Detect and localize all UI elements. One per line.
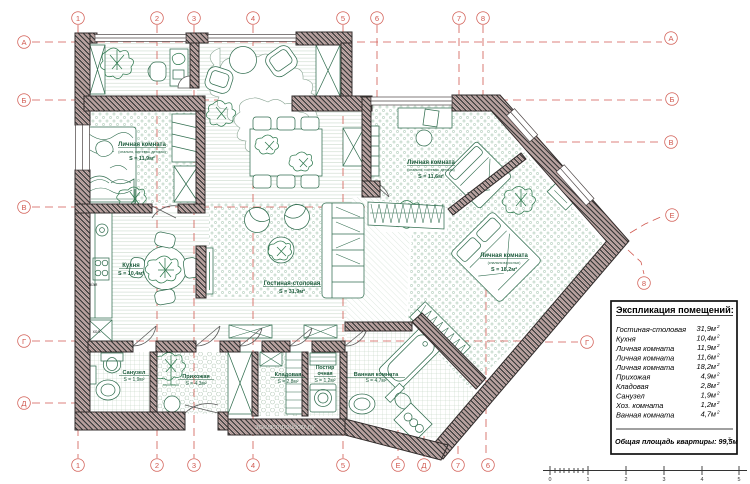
svg-text:S = 31,9м²: S = 31,9м² (279, 289, 305, 295)
svg-text:Личная комната: Личная комната (480, 253, 528, 259)
svg-text:Личная комната: Личная комната (615, 344, 674, 353)
svg-text:Личная комната: Личная комната (615, 354, 674, 363)
svg-text:6: 6 (486, 461, 490, 470)
svg-text:S = 1,2м²: S = 1,2м² (314, 378, 335, 384)
svg-text:2: 2 (716, 343, 720, 348)
svg-text:Личная комната: Личная комната (407, 160, 455, 166)
svg-text:3: 3 (192, 461, 196, 470)
svg-text:0: 0 (549, 477, 552, 483)
svg-text:В: В (668, 138, 673, 147)
svg-text:2: 2 (625, 477, 628, 483)
svg-text:S = 18,2м²: S = 18,2м² (491, 267, 517, 273)
svg-text:Гостиная-столовая: Гостиная-столовая (616, 325, 686, 334)
svg-text:1: 1 (587, 477, 590, 483)
svg-text:Прихожая: Прихожая (616, 373, 650, 382)
svg-text:S = 4,7м²: S = 4,7м² (365, 378, 386, 384)
svg-text:Кухня: Кухня (616, 335, 636, 344)
svg-text:2: 2 (716, 353, 720, 358)
svg-text:S = 1,9м²: S = 1,9м² (123, 377, 144, 383)
svg-text:Хоз. комната: Хоз. комната (615, 401, 663, 410)
svg-text:2: 2 (716, 334, 720, 339)
svg-text:Санузел: Санузел (122, 370, 145, 376)
svg-text:4,7м: 4,7м (701, 410, 716, 419)
svg-text:3: 3 (192, 14, 196, 23)
svg-text:2: 2 (716, 381, 720, 386)
svg-text:8: 8 (481, 14, 485, 23)
svg-text:п/ая: п/ая (89, 282, 98, 287)
svg-text:Е: Е (395, 461, 400, 470)
svg-text:Б: Б (22, 96, 27, 105)
svg-text:S = 11,9м²: S = 11,9м² (129, 156, 155, 162)
svg-text:Е: Е (669, 211, 674, 220)
svg-text:6: 6 (375, 14, 379, 23)
svg-text:2: 2 (716, 324, 720, 329)
svg-text:Экспликация помещений:: Экспликация помещений: (616, 305, 734, 315)
svg-text:2: 2 (716, 372, 720, 377)
svg-text:11,9м: 11,9м (697, 343, 716, 352)
svg-text:18,2м: 18,2м (697, 362, 716, 371)
svg-text:2: 2 (727, 436, 731, 441)
svg-text:очная: очная (317, 371, 332, 377)
svg-text:(спальня взрослых): (спальня взрослых) (488, 261, 521, 265)
svg-text:1,9м: 1,9м (701, 391, 716, 400)
svg-text:2: 2 (716, 391, 720, 396)
svg-text:S = 4,3м²: S = 4,3м² (185, 381, 206, 387)
svg-text:(спальня, гостевая, детская): (спальня, гостевая, детская) (407, 168, 454, 172)
svg-text:Гостиная-столовая: Гостиная-столовая (264, 281, 321, 287)
svg-text:4: 4 (701, 477, 704, 483)
svg-text:Личная комната: Личная комната (118, 142, 166, 148)
svg-text:Б: Б (670, 95, 675, 104)
svg-text:S = 11,6м²: S = 11,6м² (418, 174, 444, 180)
svg-text:Г: Г (585, 338, 589, 347)
svg-text:2: 2 (155, 461, 159, 470)
svg-text:3: 3 (663, 477, 666, 483)
svg-text:4: 4 (251, 461, 255, 470)
svg-text:Общая площадь квартиры: 99,5м: Общая площадь квартиры: 99,5м (615, 437, 739, 446)
svg-text:31,9м: 31,9м (697, 324, 716, 333)
svg-text:1: 1 (76, 461, 80, 470)
svg-text:Кухня: Кухня (122, 263, 140, 269)
svg-text:5: 5 (341, 461, 345, 470)
svg-text:1,2м: 1,2м (701, 400, 716, 409)
svg-text:1: 1 (76, 14, 80, 23)
svg-text:10,4м: 10,4м (697, 334, 716, 343)
svg-text:2: 2 (155, 14, 159, 23)
svg-text:8: 8 (642, 279, 646, 288)
svg-text:2: 2 (716, 362, 720, 367)
svg-text:хол.: хол. (93, 329, 102, 334)
svg-text:5: 5 (738, 477, 741, 483)
svg-text:Д: Д (421, 461, 426, 470)
svg-text:Д: Д (21, 399, 26, 408)
svg-text:2: 2 (716, 410, 720, 415)
svg-text:2: 2 (716, 400, 720, 405)
svg-text:4: 4 (251, 14, 255, 23)
svg-text:(спальня, гостевая, детская): (спальня, гостевая, детская) (118, 150, 165, 154)
svg-text:11,6м: 11,6м (697, 353, 716, 362)
svg-text:Кладовая: Кладовая (275, 372, 302, 378)
svg-text:Прихожая: Прихожая (182, 374, 210, 380)
svg-text:4,9м: 4,9м (701, 372, 716, 381)
svg-text:В: В (21, 203, 26, 212)
svg-text:2,8м: 2,8м (700, 381, 716, 390)
svg-text:Кладовая: Кладовая (616, 382, 649, 391)
svg-text:Ванная комната: Ванная комната (616, 411, 674, 420)
svg-text:7: 7 (456, 461, 460, 470)
svg-text:S = 2,8м²: S = 2,8м² (277, 379, 298, 385)
svg-text:Санузел: Санузел (616, 392, 646, 401)
svg-text:5: 5 (341, 14, 345, 23)
svg-text:7: 7 (457, 14, 461, 23)
svg-text:S = 10,4м²: S = 10,4м² (118, 271, 144, 277)
svg-text:Г: Г (22, 337, 26, 346)
svg-text:Личная комната: Личная комната (615, 363, 674, 372)
svg-text:эскизстройдом.ру: эскизстройдом.ру (255, 423, 315, 431)
